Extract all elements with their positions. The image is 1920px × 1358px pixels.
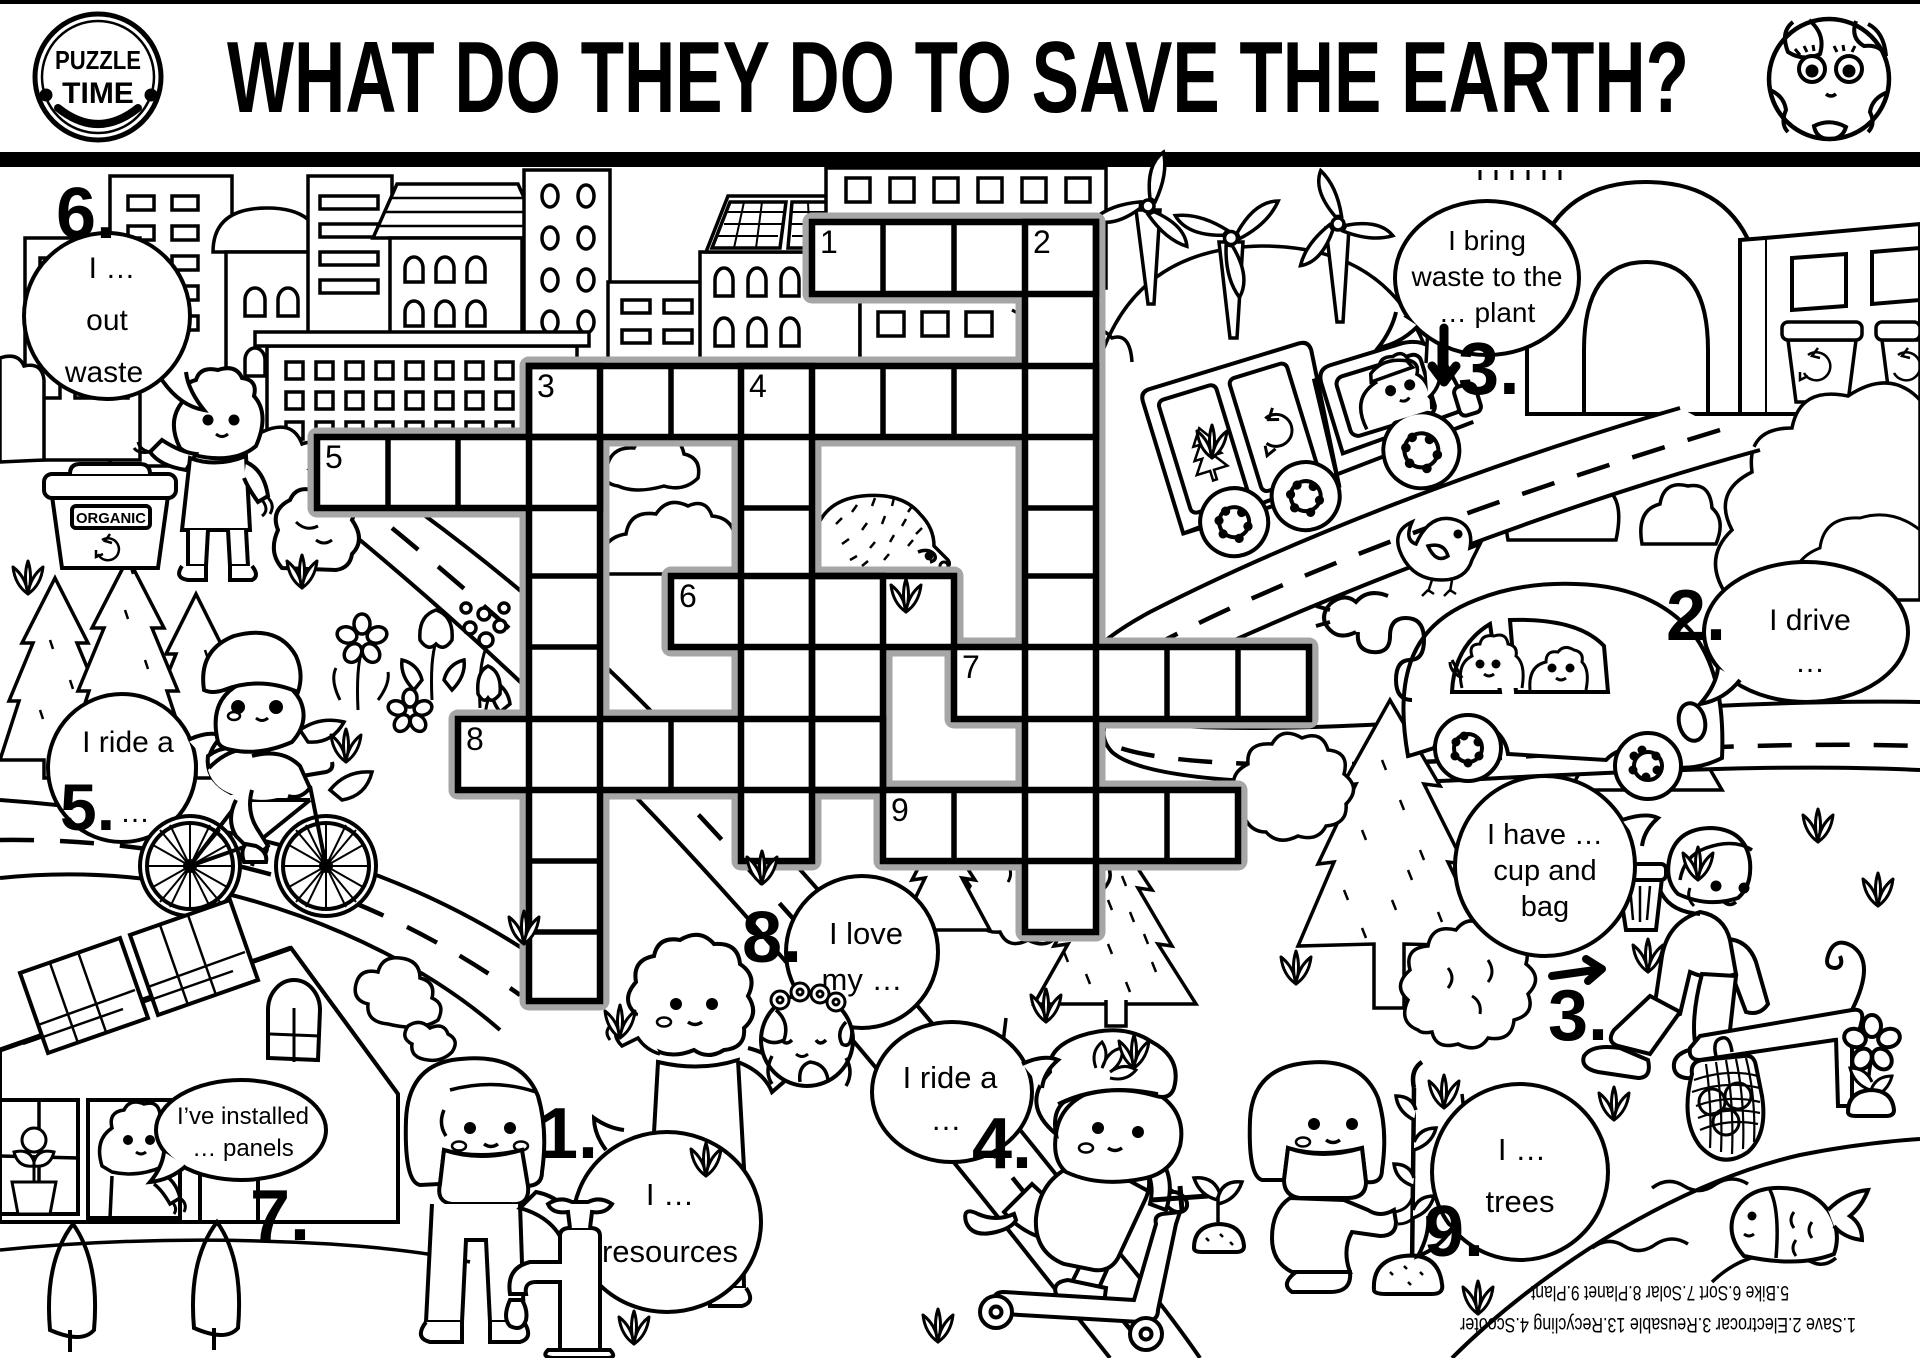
svg-text:I love: I love: [829, 916, 903, 951]
svg-text:3.: 3.: [1458, 327, 1520, 410]
svg-text:I’ve installed: I’ve installed: [177, 1103, 309, 1130]
svg-text:6: 6: [679, 578, 697, 614]
svg-text:my …: my …: [822, 962, 903, 997]
svg-text:2.: 2.: [1666, 576, 1726, 656]
svg-text:3: 3: [537, 368, 555, 404]
svg-text:I …: I …: [1498, 1132, 1546, 1167]
svg-text:4.: 4.: [972, 1104, 1032, 1184]
svg-text:I bring: I bring: [1448, 225, 1526, 256]
svg-text:1.Save 2.Electrocar 3.Reusable: 1.Save 2.Electrocar 3.Reusable 13.Recycl…: [1460, 1313, 1856, 1336]
svg-text:3.: 3.: [1548, 976, 1608, 1056]
svg-text:ORGANIC: ORGANIC: [76, 510, 146, 527]
svg-text:…: …: [1795, 646, 1825, 679]
svg-text:… panels: … panels: [192, 1135, 293, 1162]
svg-text:bag: bag: [1521, 891, 1569, 923]
svg-text:out: out: [86, 304, 128, 337]
svg-text:…: …: [931, 1102, 962, 1137]
svg-text:I drive: I drive: [1769, 604, 1851, 637]
svg-text:…: …: [120, 796, 150, 829]
svg-text:8: 8: [466, 721, 484, 757]
svg-text:1.: 1.: [538, 1094, 598, 1174]
svg-text:I have …: I have …: [1487, 819, 1603, 851]
svg-text:I ride a: I ride a: [903, 1060, 999, 1095]
svg-text:trees: trees: [1486, 1184, 1555, 1219]
svg-text:6.: 6.: [56, 174, 116, 254]
svg-text:5.Bike 6.Sort 7.Solar 8.Planet: 5.Bike 6.Sort 7.Solar 8.Planet 9.Plant: [1531, 1281, 1789, 1304]
svg-text:resources: resources: [602, 1234, 738, 1269]
svg-text:8.: 8.: [742, 898, 802, 978]
svg-text:9: 9: [891, 792, 909, 828]
svg-text:waste to the: waste to the: [1411, 261, 1563, 292]
svg-text:5.: 5.: [60, 770, 115, 844]
svg-text:TIME: TIME: [62, 77, 134, 110]
svg-text:7.: 7.: [250, 1176, 310, 1256]
svg-text:… plant: … plant: [1439, 297, 1536, 328]
svg-text:cup and: cup and: [1493, 855, 1596, 887]
svg-text:I …: I …: [646, 1177, 694, 1212]
svg-text:4: 4: [749, 368, 767, 404]
svg-text:9.: 9.: [1424, 1192, 1484, 1272]
svg-text:2: 2: [1033, 224, 1051, 260]
svg-text:PUZZLE: PUZZLE: [55, 45, 141, 75]
svg-text:I ride a: I ride a: [82, 726, 174, 759]
svg-text:7: 7: [962, 649, 980, 685]
svg-text:1: 1: [820, 224, 838, 260]
svg-text:WHAT DO THEY DO TO SAVE THE EA: WHAT DO THEY DO TO SAVE THE EARTH?: [227, 22, 1689, 134]
svg-text:I …: I …: [89, 252, 136, 285]
svg-text:5: 5: [325, 439, 343, 475]
svg-text:waste: waste: [64, 356, 143, 389]
